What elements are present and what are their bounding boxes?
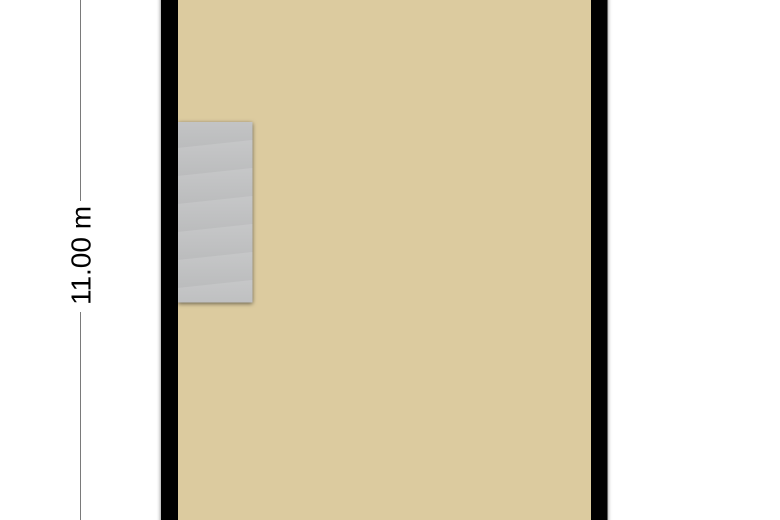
svg-text:11.00 m: 11.00 m — [66, 206, 97, 305]
